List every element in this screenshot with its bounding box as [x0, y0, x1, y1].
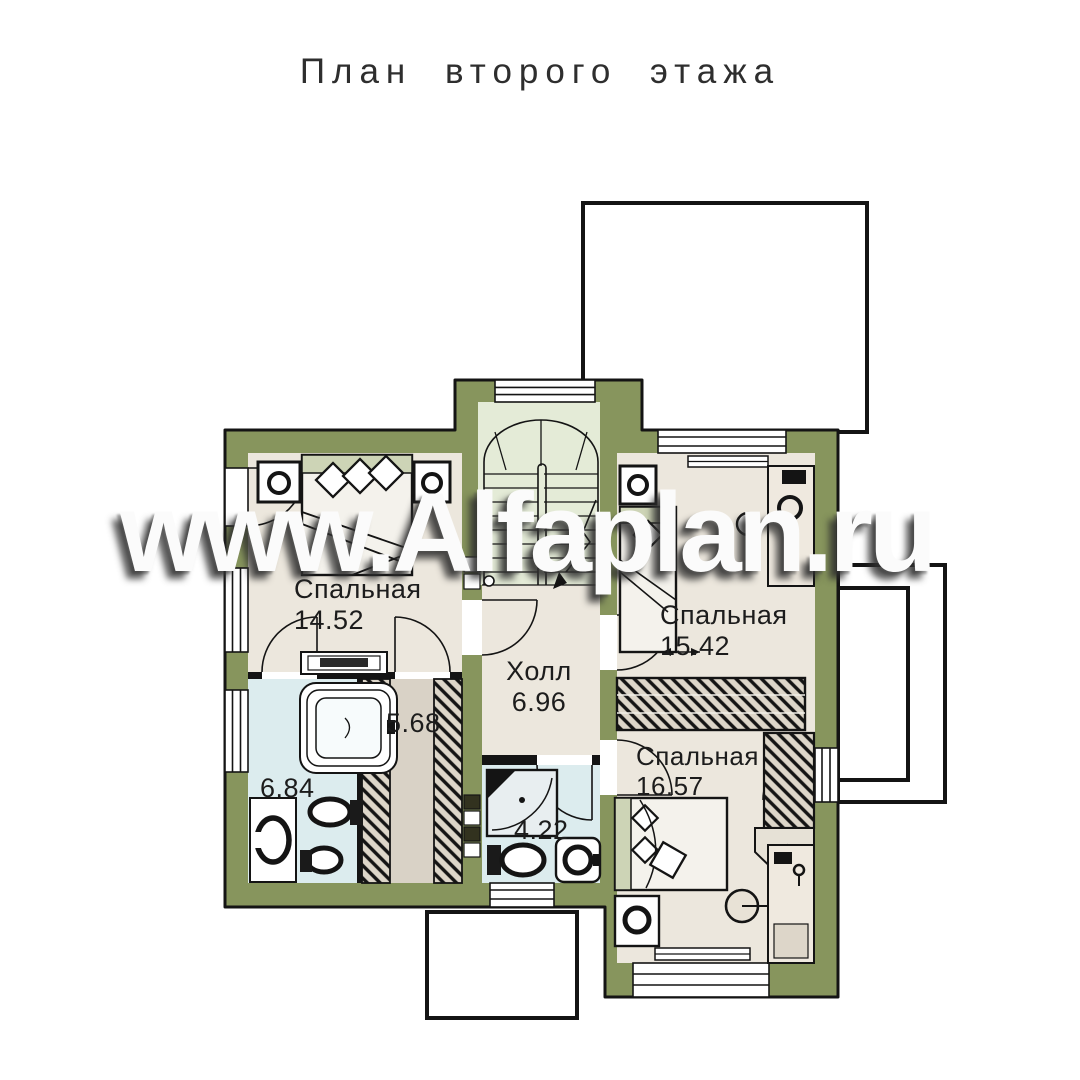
hall-label: Холл 6.96	[503, 656, 575, 718]
bedroom3-wardrobe	[764, 733, 814, 828]
room-area: 5.68	[386, 708, 441, 739]
toilet-icon	[310, 799, 363, 825]
room-area: 16.57	[636, 772, 759, 802]
bedroom1-label: Спальная 14.52	[294, 574, 422, 636]
window-left-bedroom1	[225, 568, 248, 652]
toilet-icon	[487, 845, 544, 875]
bed-icon	[302, 455, 412, 575]
balcony-door-left	[225, 468, 248, 526]
bed-icon	[615, 798, 727, 890]
dresser-icon	[301, 652, 387, 674]
room-name: Холл	[506, 656, 572, 686]
room-area: 14.52	[294, 605, 422, 636]
bedroom2-wardrobe-strip	[617, 678, 805, 730]
dressing-label: 5.68	[386, 708, 441, 739]
window-left-bathroom	[225, 690, 248, 772]
window-bathroom-bottom	[490, 883, 554, 907]
radiator-icon	[688, 456, 768, 467]
window-bedroom2-top	[658, 430, 786, 453]
room-name: Спальная	[294, 574, 422, 604]
room-area: 15.42	[660, 631, 788, 662]
radiator-icon	[655, 948, 750, 960]
room-name: Спальная	[660, 600, 788, 630]
bathtub-icon	[300, 683, 397, 773]
washbasin-icon	[250, 798, 296, 882]
bedroom3-label: Спальная 16.57	[636, 742, 759, 801]
floor-plan-page: План второго этажа	[0, 0, 1080, 1080]
roof-outline-bottom	[427, 912, 577, 1018]
room-area: 4.22	[514, 815, 569, 846]
window-stair-top	[495, 380, 595, 402]
bathroom-small-label: 4.22	[514, 815, 569, 846]
bidet-icon	[300, 848, 341, 872]
bathroom-main-label: 6.84	[260, 773, 315, 804]
floor-plan-drawing	[0, 0, 1080, 1080]
nightstand-icon	[258, 462, 300, 502]
bedroom2-label: Спальная 15.42	[660, 600, 788, 662]
balcony-door-right	[815, 748, 838, 802]
room-area: 6.84	[260, 773, 315, 804]
room-name: Спальная	[636, 741, 759, 771]
balcony	[838, 565, 945, 802]
pouf-icon	[615, 896, 659, 946]
room-area: 6.96	[503, 687, 575, 718]
window-bedroom3-bottom	[633, 963, 769, 997]
nightstand-icon	[414, 462, 450, 502]
nightstand-icon	[620, 466, 656, 504]
